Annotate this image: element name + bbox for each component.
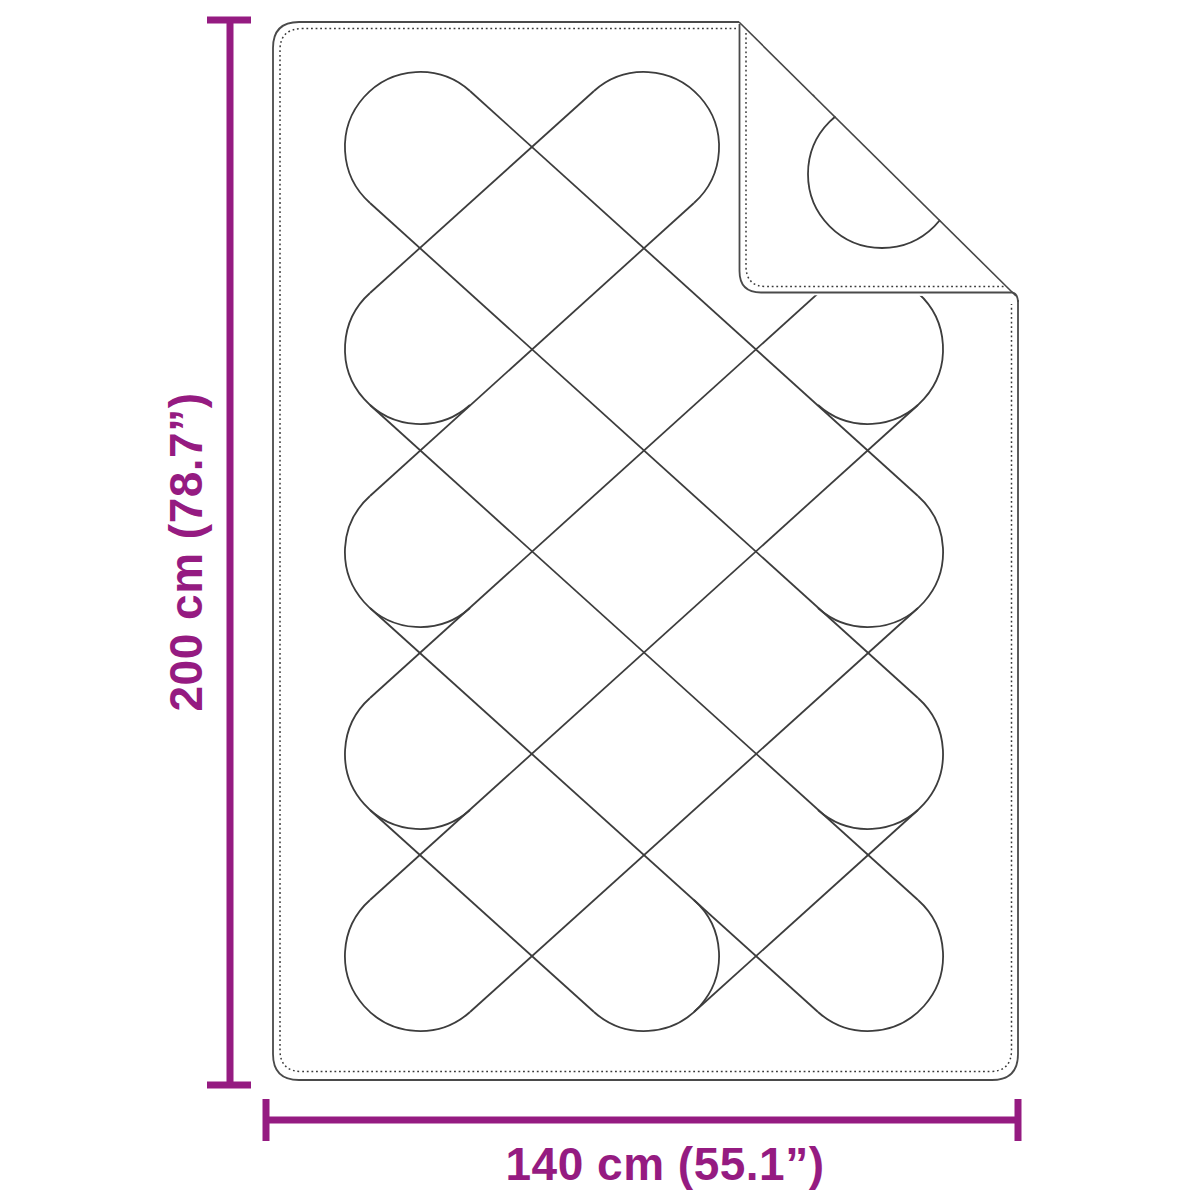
width-dimension-line xyxy=(266,1099,1018,1141)
height-dimension-line xyxy=(207,20,251,1085)
diagram-canvas: 200 cm (78.7”) 140 cm (55.1”) xyxy=(0,0,1200,1200)
width-dimension-label: 140 cm (55.1”) xyxy=(506,1137,825,1191)
blanket-body xyxy=(273,22,1018,1080)
height-dimension-label: 200 cm (78.7”) xyxy=(159,393,213,712)
